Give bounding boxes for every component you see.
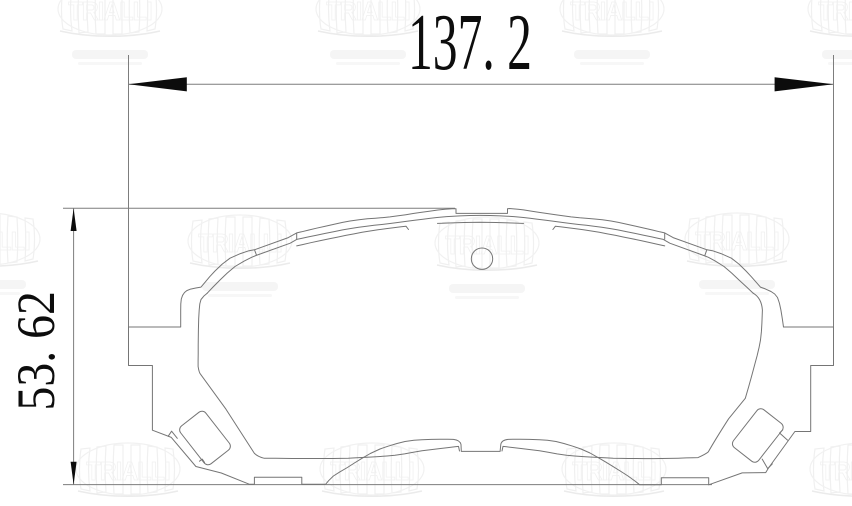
svg-text:53. 62: 53. 62 bbox=[7, 291, 66, 410]
svg-text:137. 2: 137. 2 bbox=[408, 0, 532, 87]
